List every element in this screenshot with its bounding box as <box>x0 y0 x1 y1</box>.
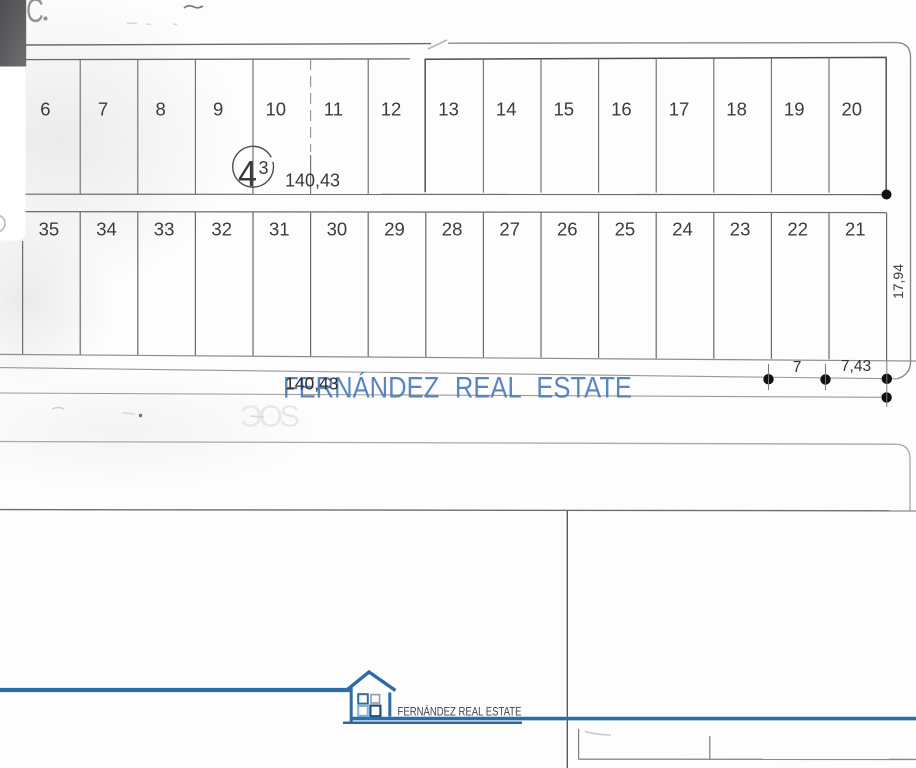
svg-text:11: 11 <box>324 99 343 120</box>
svg-text:9: 9 <box>213 99 223 120</box>
svg-text:34: 34 <box>96 219 117 240</box>
svg-text:35: 35 <box>39 219 60 240</box>
svg-text:21: 21 <box>845 219 866 240</box>
svg-text:25: 25 <box>615 219 636 240</box>
svg-text:24: 24 <box>672 219 693 240</box>
svg-text:7: 7 <box>98 99 108 120</box>
svg-text:17: 17 <box>669 99 690 120</box>
svg-text:13: 13 <box>438 99 459 120</box>
svg-text:10: 10 <box>266 99 287 120</box>
svg-text:22: 22 <box>787 219 808 240</box>
svg-text:140,43: 140,43 <box>285 170 340 190</box>
svg-text:23: 23 <box>730 219 751 240</box>
svg-text:6: 6 <box>40 99 50 120</box>
svg-text:30: 30 <box>327 219 348 240</box>
svg-text:33: 33 <box>154 219 175 240</box>
svg-text:140,43: 140,43 <box>285 374 339 394</box>
svg-text:12: 12 <box>381 99 402 120</box>
svg-text:17,94: 17,94 <box>890 264 906 299</box>
svg-text:FERNÁNDEZ REAL ESTATE: FERNÁNDEZ REAL ESTATE <box>398 704 522 718</box>
svg-text:18: 18 <box>726 99 747 120</box>
svg-text:28: 28 <box>442 219 463 240</box>
svg-text:4: 4 <box>238 154 257 194</box>
svg-text:7,43: 7,43 <box>841 358 871 375</box>
svg-text:29: 29 <box>384 219 405 240</box>
svg-text:15: 15 <box>554 99 575 120</box>
svg-text:14: 14 <box>496 99 517 120</box>
svg-text:8: 8 <box>155 99 165 120</box>
svg-text:C: C <box>26 0 44 30</box>
svg-text:19: 19 <box>784 99 805 120</box>
svg-text:32: 32 <box>211 219 232 240</box>
svg-text:7: 7 <box>793 359 802 376</box>
svg-text:3: 3 <box>258 158 268 178</box>
svg-text:31: 31 <box>269 219 290 240</box>
svg-text:20: 20 <box>842 99 863 120</box>
svg-text:26: 26 <box>557 219 578 240</box>
svg-text:ƆOS: ƆOS <box>240 399 300 434</box>
svg-text:16: 16 <box>611 99 632 120</box>
svg-text:27: 27 <box>499 219 520 240</box>
